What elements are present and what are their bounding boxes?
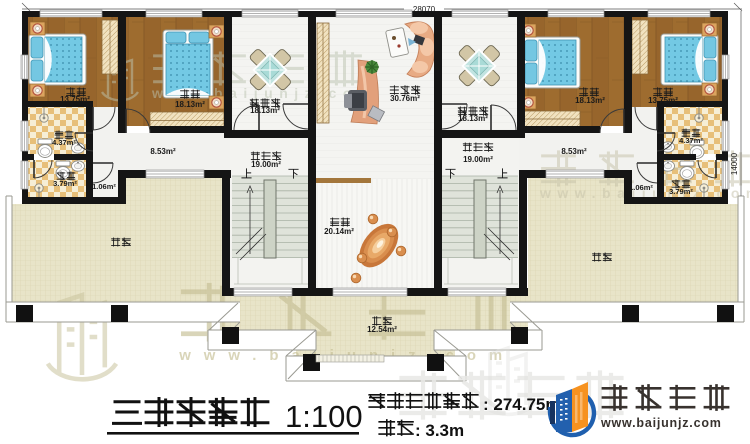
svg-text:18.13m²: 18.13m² [250,106,280,115]
svg-text:13.75m²: 13.75m² [648,96,678,105]
svg-text:1:100: 1:100 [285,399,363,434]
svg-text:13.75m²: 13.75m² [60,95,90,104]
svg-text:3.79m²: 3.79m² [53,179,77,188]
svg-text:: 3.3m: : 3.3m [415,421,464,440]
svg-text:19.00m²: 19.00m² [463,155,493,164]
svg-text:14000: 14000 [730,152,739,175]
svg-text:19.00m²: 19.00m² [251,160,281,169]
svg-text:4.37m²: 4.37m² [679,136,703,145]
svg-text:12.54m²: 12.54m² [367,325,397,334]
svg-text:3.79m²: 3.79m² [669,187,693,196]
svg-text:www.baijunjz.com: www.baijunjz.com [600,416,722,430]
svg-text:8.53m²: 8.53m² [561,147,587,156]
svg-text:8.53m²: 8.53m² [150,147,176,156]
svg-text:30.76m²: 30.76m² [390,94,420,103]
svg-text:1.06m²: 1.06m² [629,183,653,192]
svg-text:20.14m²: 20.14m² [324,227,354,236]
svg-text:18.13m²: 18.13m² [458,114,488,123]
svg-text:4.37m²: 4.37m² [52,138,76,147]
svg-text:28070: 28070 [413,5,436,14]
svg-text:18.13m²: 18.13m² [575,96,605,105]
svg-text:18.13m²: 18.13m² [175,100,205,109]
svg-text:1.06m²: 1.06m² [92,182,116,191]
